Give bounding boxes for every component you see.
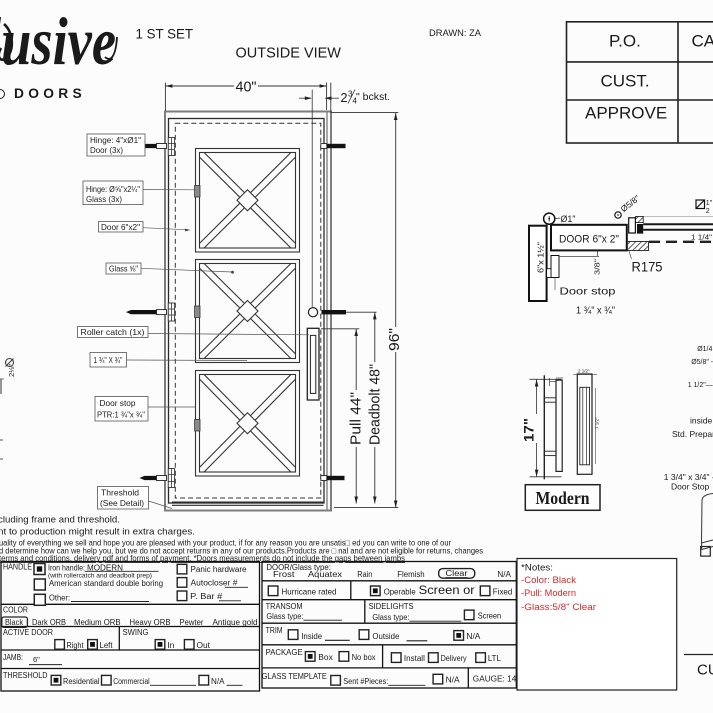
svg-text:Iron handle:: Iron handle: — [48, 563, 85, 572]
svg-text:Ø1": Ø1" — [561, 214, 576, 225]
svg-text:Door Stop: Door Stop — [671, 481, 710, 491]
svg-text:Threshold: Threshold — [101, 487, 139, 497]
svg-text:N/A: N/A — [211, 677, 225, 686]
svg-text:1 ST SET: 1 ST SET — [136, 27, 194, 42]
svg-text:CUST.: CUST. — [601, 72, 650, 91]
svg-text:1 ¾" x ¾": 1 ¾" x ¾" — [576, 305, 615, 317]
svg-text:1": 1" — [706, 200, 713, 207]
svg-text:Door stop: Door stop — [100, 398, 136, 408]
svg-text:96": 96" — [387, 328, 403, 351]
svg-text:Dark ORB: Dark ORB — [32, 618, 66, 627]
svg-text:Out: Out — [197, 641, 211, 650]
svg-text:Other:: Other: — [49, 594, 70, 603]
svg-text:DOORS: DOORS — [14, 86, 86, 101]
svg-text:" bckst.: " bckst. — [356, 91, 390, 103]
svg-text:cluding frame and threshold.: cluding frame and threshold. — [0, 515, 120, 526]
svg-text:HANDLE: HANDLE — [3, 562, 32, 571]
svg-text:Glass (3x): Glass (3x) — [86, 194, 122, 204]
svg-text:Glass type:: Glass type: — [372, 613, 409, 622]
svg-text:Door (3x): Door (3x) — [90, 145, 123, 155]
svg-text:PTR:1 ¾"x ¾": PTR:1 ¾"x ¾" — [97, 411, 145, 420]
svg-text:lusive: lusive — [0, 3, 116, 79]
svg-text:Commercial: Commercial — [113, 677, 150, 686]
svg-text:Frost: Frost — [273, 570, 295, 579]
svg-text:Door 6"x2": Door 6"x2" — [101, 222, 140, 232]
svg-text:SIDELIGHTS: SIDELIGHTS — [369, 602, 414, 611]
svg-text:N/A: N/A — [497, 570, 511, 579]
svg-text:Glass ⅝": Glass ⅝" — [109, 263, 138, 273]
svg-text:CUST: CUST — [697, 662, 713, 679]
svg-text:Hinge: Ø⅝"x2¼": Hinge: Ø⅝"x2¼" — [86, 184, 140, 194]
svg-text:3/8": 3/8" — [593, 259, 602, 275]
svg-text:American standard double borin: American standard double boring — [49, 579, 163, 588]
svg-text:2 1/2": 2 1/2" — [578, 369, 590, 374]
svg-text:N/A: N/A — [466, 632, 481, 641]
svg-text:7 1/2": 7 1/2" — [595, 417, 600, 429]
svg-text:CASH: CASH — [692, 32, 713, 51]
svg-text:ACTIVE DOOR: ACTIVE DOOR — [3, 628, 53, 637]
svg-text:Clear: Clear — [446, 569, 468, 578]
svg-text:1 1/2"—: 1 1/2"— — [688, 382, 713, 389]
svg-text:2: 2 — [706, 208, 710, 215]
svg-text:Antique gold: Antique gold — [213, 618, 258, 627]
svg-text:THRESHOLD: THRESHOLD — [3, 671, 48, 680]
svg-text:Hurricane rated: Hurricane rated — [282, 587, 337, 596]
svg-text:Right: Right — [67, 641, 85, 650]
svg-text:Heavy ORB: Heavy ORB — [130, 618, 171, 627]
svg-text:17": 17" — [521, 418, 537, 442]
svg-text:P.O.: P.O. — [609, 32, 641, 51]
svg-text:Pull 44": Pull 44" — [349, 392, 365, 445]
svg-text:2⅛": 2⅛" — [7, 364, 16, 377]
svg-text:Operable: Operable — [384, 587, 417, 596]
svg-text:Std. Prepar: Std. Prepar — [672, 429, 713, 439]
svg-text:Sent #Pieces:: Sent #Pieces: — [343, 677, 388, 686]
svg-text:P. Bar #: P. Bar # — [190, 592, 223, 601]
svg-text:1 1/4": 1 1/4" — [691, 232, 712, 241]
svg-text:Modern: Modern — [536, 488, 590, 508]
svg-text:6": 6" — [33, 655, 40, 664]
svg-text:Residential: Residential — [63, 677, 100, 686]
svg-text:-Pull: Modern: -Pull: Modern — [521, 588, 576, 599]
svg-text:R175: R175 — [632, 260, 663, 275]
svg-text:Install: Install — [404, 654, 425, 663]
svg-text:1 ¾" X ¾": 1 ¾" X ¾" — [94, 356, 123, 365]
svg-text:Fixed: Fixed — [493, 587, 513, 596]
svg-text:Panic hardware: Panic hardware — [191, 565, 248, 574]
svg-text:Screen or: Screen or — [419, 585, 475, 597]
svg-text:2: 2 — [341, 91, 348, 105]
svg-text:Ø5/8": Ø5/8" — [619, 193, 642, 214]
svg-text:inside: inside — [690, 416, 712, 426]
svg-text:Door stop: Door stop — [560, 286, 616, 298]
svg-text:PACKAGE: PACKAGE — [266, 648, 303, 657]
svg-text:DRAWN: ZA: DRAWN: ZA — [429, 28, 482, 39]
svg-text:TRANSOM: TRANSOM — [266, 602, 303, 611]
svg-text:Medium ORB: Medium ORB — [74, 618, 121, 627]
svg-text:Black: Black — [5, 618, 24, 627]
svg-text:APPROVE: APPROVE — [585, 104, 667, 123]
svg-text:Rain: Rain — [357, 570, 372, 579]
svg-text:SWING: SWING — [123, 628, 149, 637]
svg-text:Roller catch (1x): Roller catch (1x) — [81, 327, 145, 337]
svg-text:DOOR 6"x 2": DOOR 6"x 2" — [559, 233, 619, 245]
svg-text:Delivery: Delivery — [441, 654, 467, 663]
svg-text:Hinge: 4"xØ1": Hinge: 4"xØ1" — [90, 135, 141, 145]
svg-text:Ø5/8" -: Ø5/8" - — [691, 359, 713, 366]
svg-text:6"x 1½": 6"x 1½" — [537, 242, 546, 273]
svg-text:GLASS TEMPLATE: GLASS TEMPLATE — [262, 672, 327, 681]
svg-text:Ø1/4: Ø1/4 — [697, 346, 712, 353]
svg-text:Inside: Inside — [301, 632, 323, 641]
svg-text:*Notes:: *Notes: — [521, 562, 553, 573]
svg-text:GAUGE: 14: GAUGE: 14 — [473, 673, 517, 683]
svg-text:Autocloser #: Autocloser # — [191, 578, 239, 587]
svg-text:TRIM: TRIM — [266, 626, 283, 635]
svg-text:JAMB:: JAMB: — [3, 653, 23, 662]
svg-text:Box: Box — [318, 653, 333, 662]
svg-text:(See Detail): (See Detail) — [100, 498, 144, 508]
svg-text:LTL: LTL — [488, 654, 502, 663]
svg-text:nt to production might result: nt to production might result in extra c… — [0, 526, 195, 537]
svg-text:Pewter: Pewter — [180, 618, 204, 627]
svg-text:Glass type:: Glass type: — [266, 612, 303, 621]
svg-text:Screen: Screen — [478, 611, 502, 620]
svg-text:1 3/4" x 3/4" -: 1 3/4" x 3/4" - — [664, 472, 713, 482]
svg-text:Deadbolt 48": Deadbolt 48" — [367, 364, 383, 445]
svg-text:Outside: Outside — [372, 632, 400, 641]
svg-text:No box: No box — [352, 653, 376, 662]
svg-text:Flemish: Flemish — [397, 570, 425, 579]
svg-text:40": 40" — [236, 80, 257, 96]
svg-text:Left: Left — [100, 641, 114, 650]
svg-text:Aquatex: Aquatex — [308, 570, 342, 579]
svg-text:COLOR: COLOR — [3, 606, 28, 615]
svg-text:-Glass:5/8" Clear: -Glass:5/8" Clear — [521, 602, 596, 613]
svg-text:In: In — [167, 641, 174, 650]
svg-text:N/A: N/A — [446, 675, 461, 684]
svg-text:-Color: Black: -Color: Black — [521, 575, 576, 586]
svg-text:OUTSIDE VIEW: OUTSIDE VIEW — [236, 46, 342, 62]
